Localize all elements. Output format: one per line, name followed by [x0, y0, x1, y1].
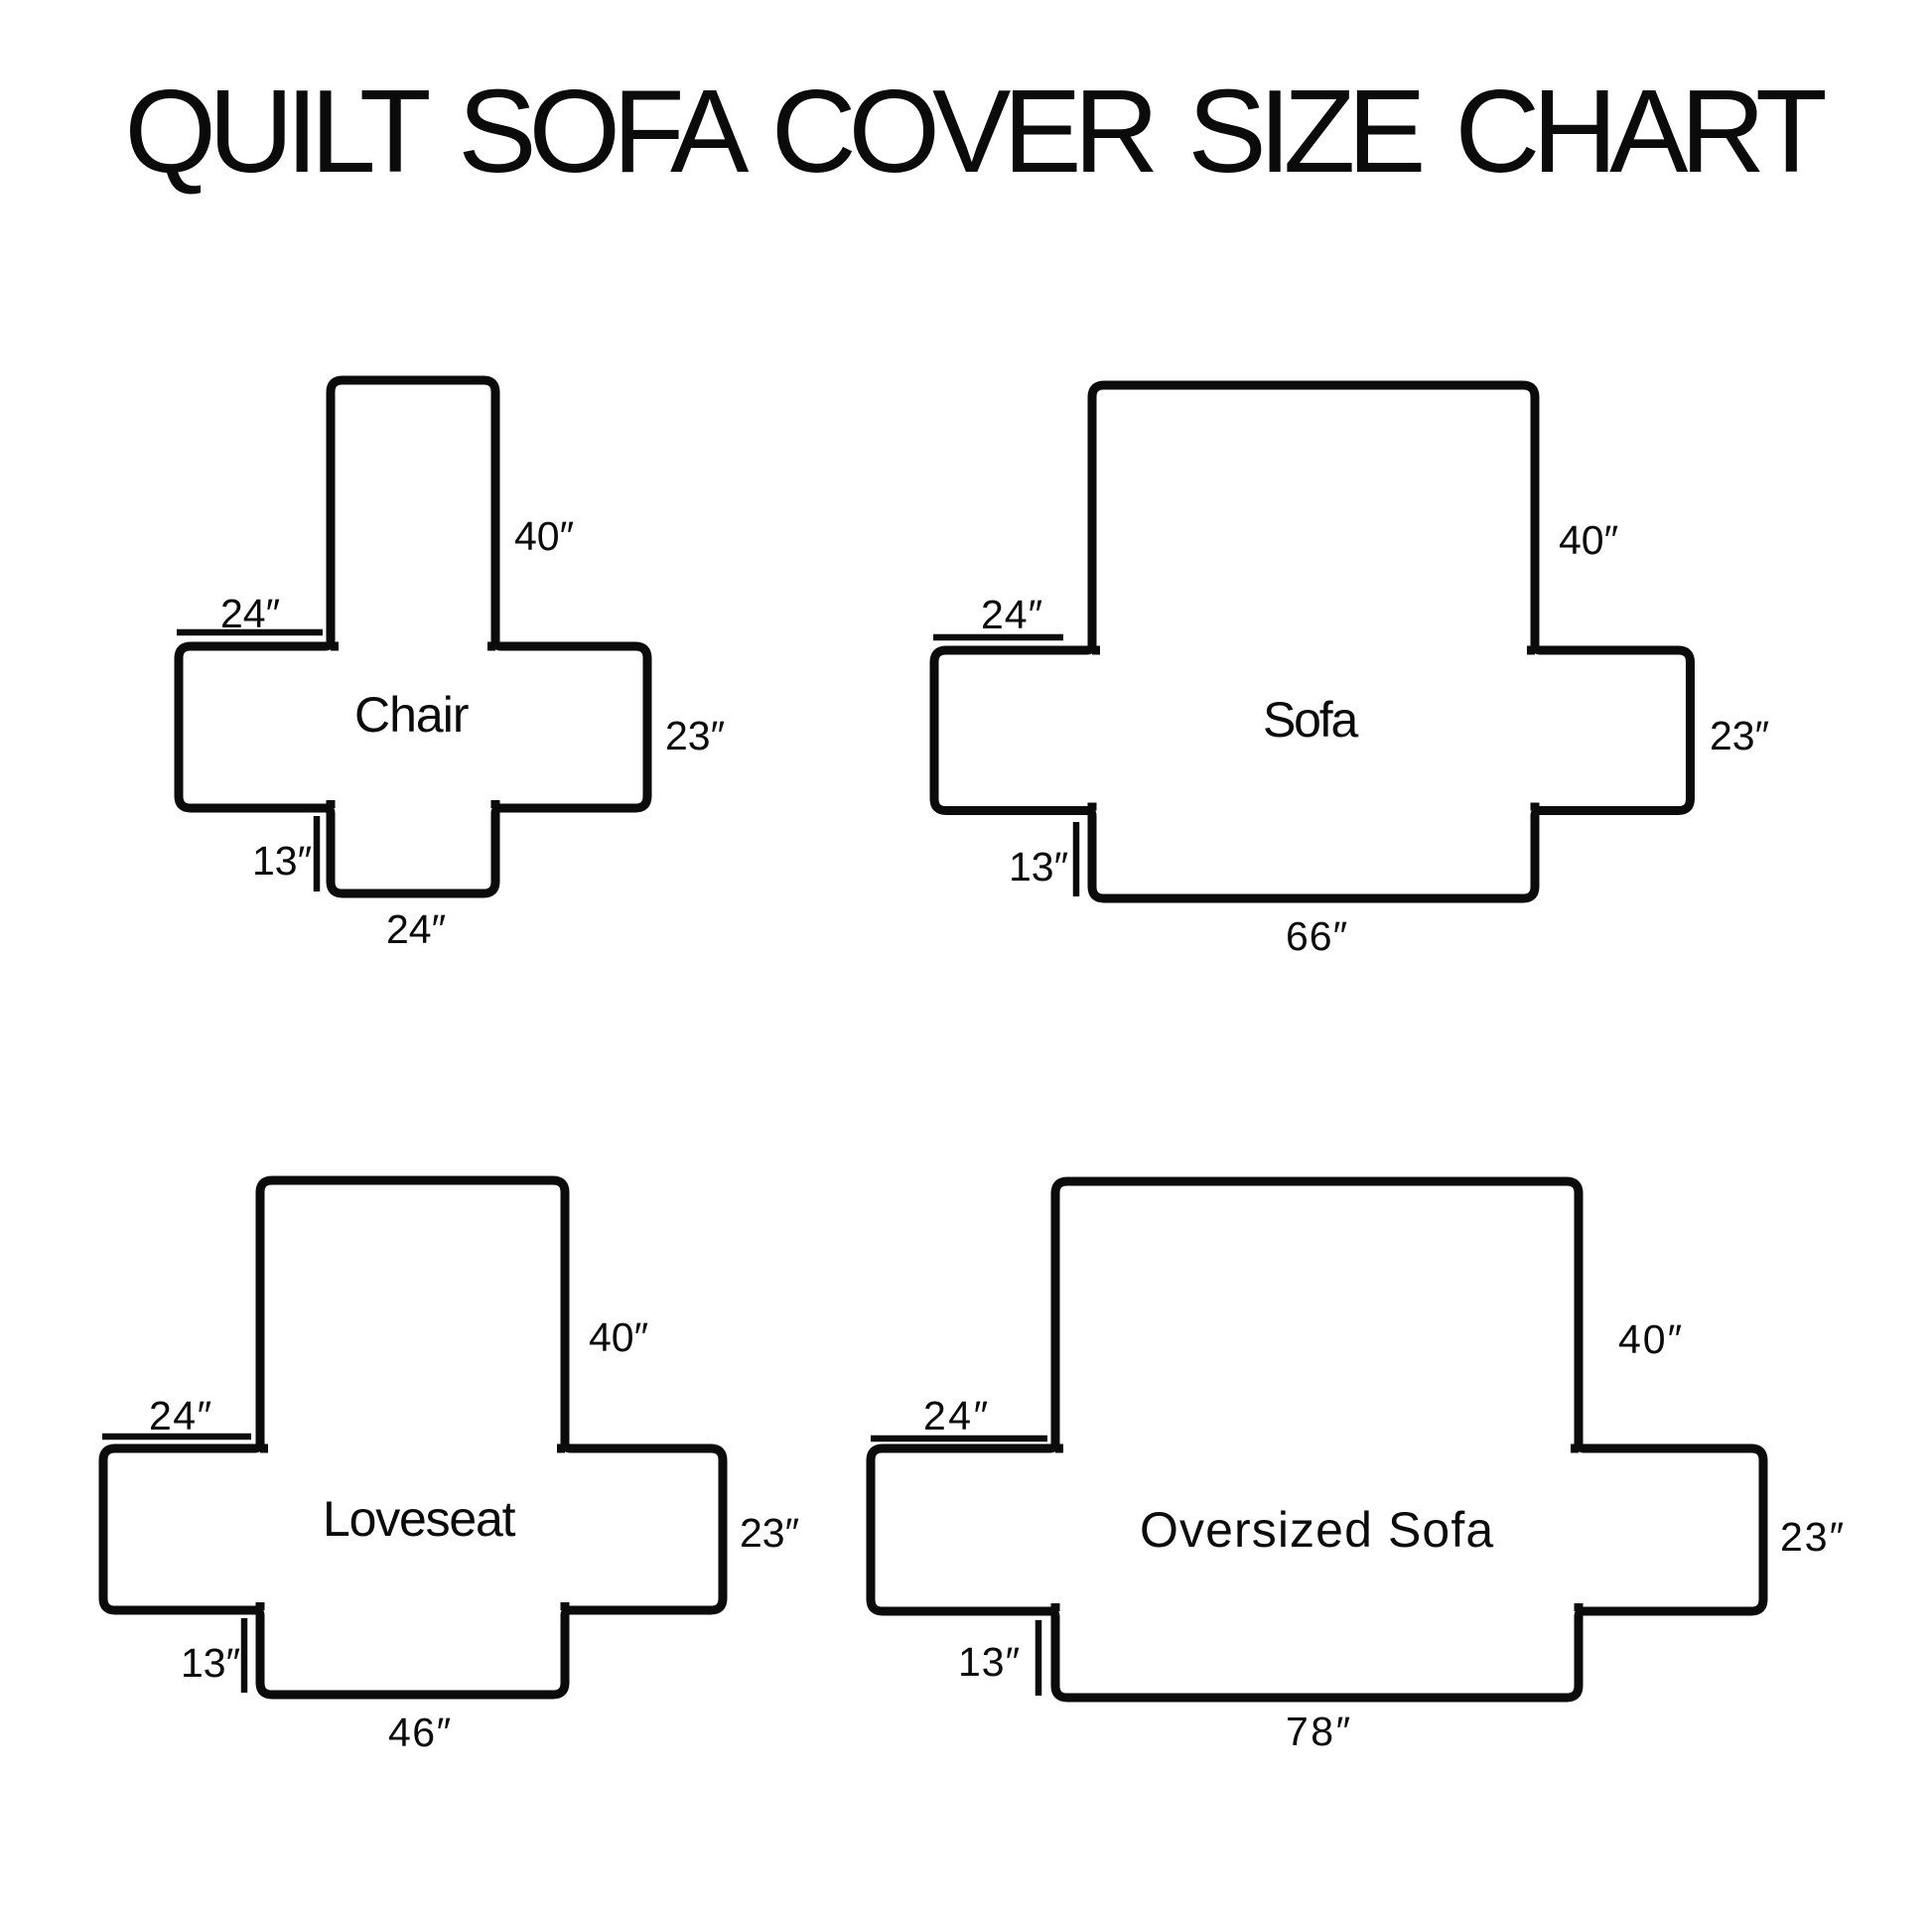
svg-text:40″: 40″ [1559, 517, 1618, 563]
svg-text:Oversized Sofa: Oversized Sofa [1140, 1502, 1494, 1558]
svg-text:24″: 24″ [981, 592, 1043, 637]
svg-text:78″: 78″ [1286, 1709, 1353, 1754]
svg-text:40″: 40″ [1618, 1316, 1684, 1362]
svg-text:13″: 13″ [958, 1639, 1021, 1685]
svg-text:40″: 40″ [589, 1314, 648, 1360]
svg-text:24″: 24″ [220, 591, 280, 636]
svg-text:QUILT SOFA COVER SIZE CHART: QUILT SOFA COVER SIZE CHART [124, 66, 1825, 198]
svg-text:66″: 66″ [1286, 913, 1348, 959]
svg-text:23″: 23″ [1780, 1514, 1846, 1560]
svg-text:Sofa: Sofa [1263, 692, 1358, 748]
svg-text:23″: 23″ [665, 713, 725, 758]
svg-text:23″: 23″ [1710, 713, 1769, 758]
svg-text:23″: 23″ [740, 1510, 799, 1556]
svg-text:13″: 13″ [181, 1640, 240, 1686]
svg-text:Loveseat: Loveseat [323, 1491, 516, 1547]
svg-text:40″: 40″ [514, 513, 574, 559]
svg-text:Chair: Chair [354, 687, 469, 743]
svg-text:46″: 46″ [388, 1710, 453, 1755]
svg-text:13″: 13″ [252, 838, 312, 884]
svg-text:24″: 24″ [386, 906, 446, 952]
svg-text:24″: 24″ [149, 1393, 213, 1438]
svg-text:24″: 24″ [923, 1393, 991, 1438]
svg-text:13″: 13″ [1009, 844, 1068, 890]
